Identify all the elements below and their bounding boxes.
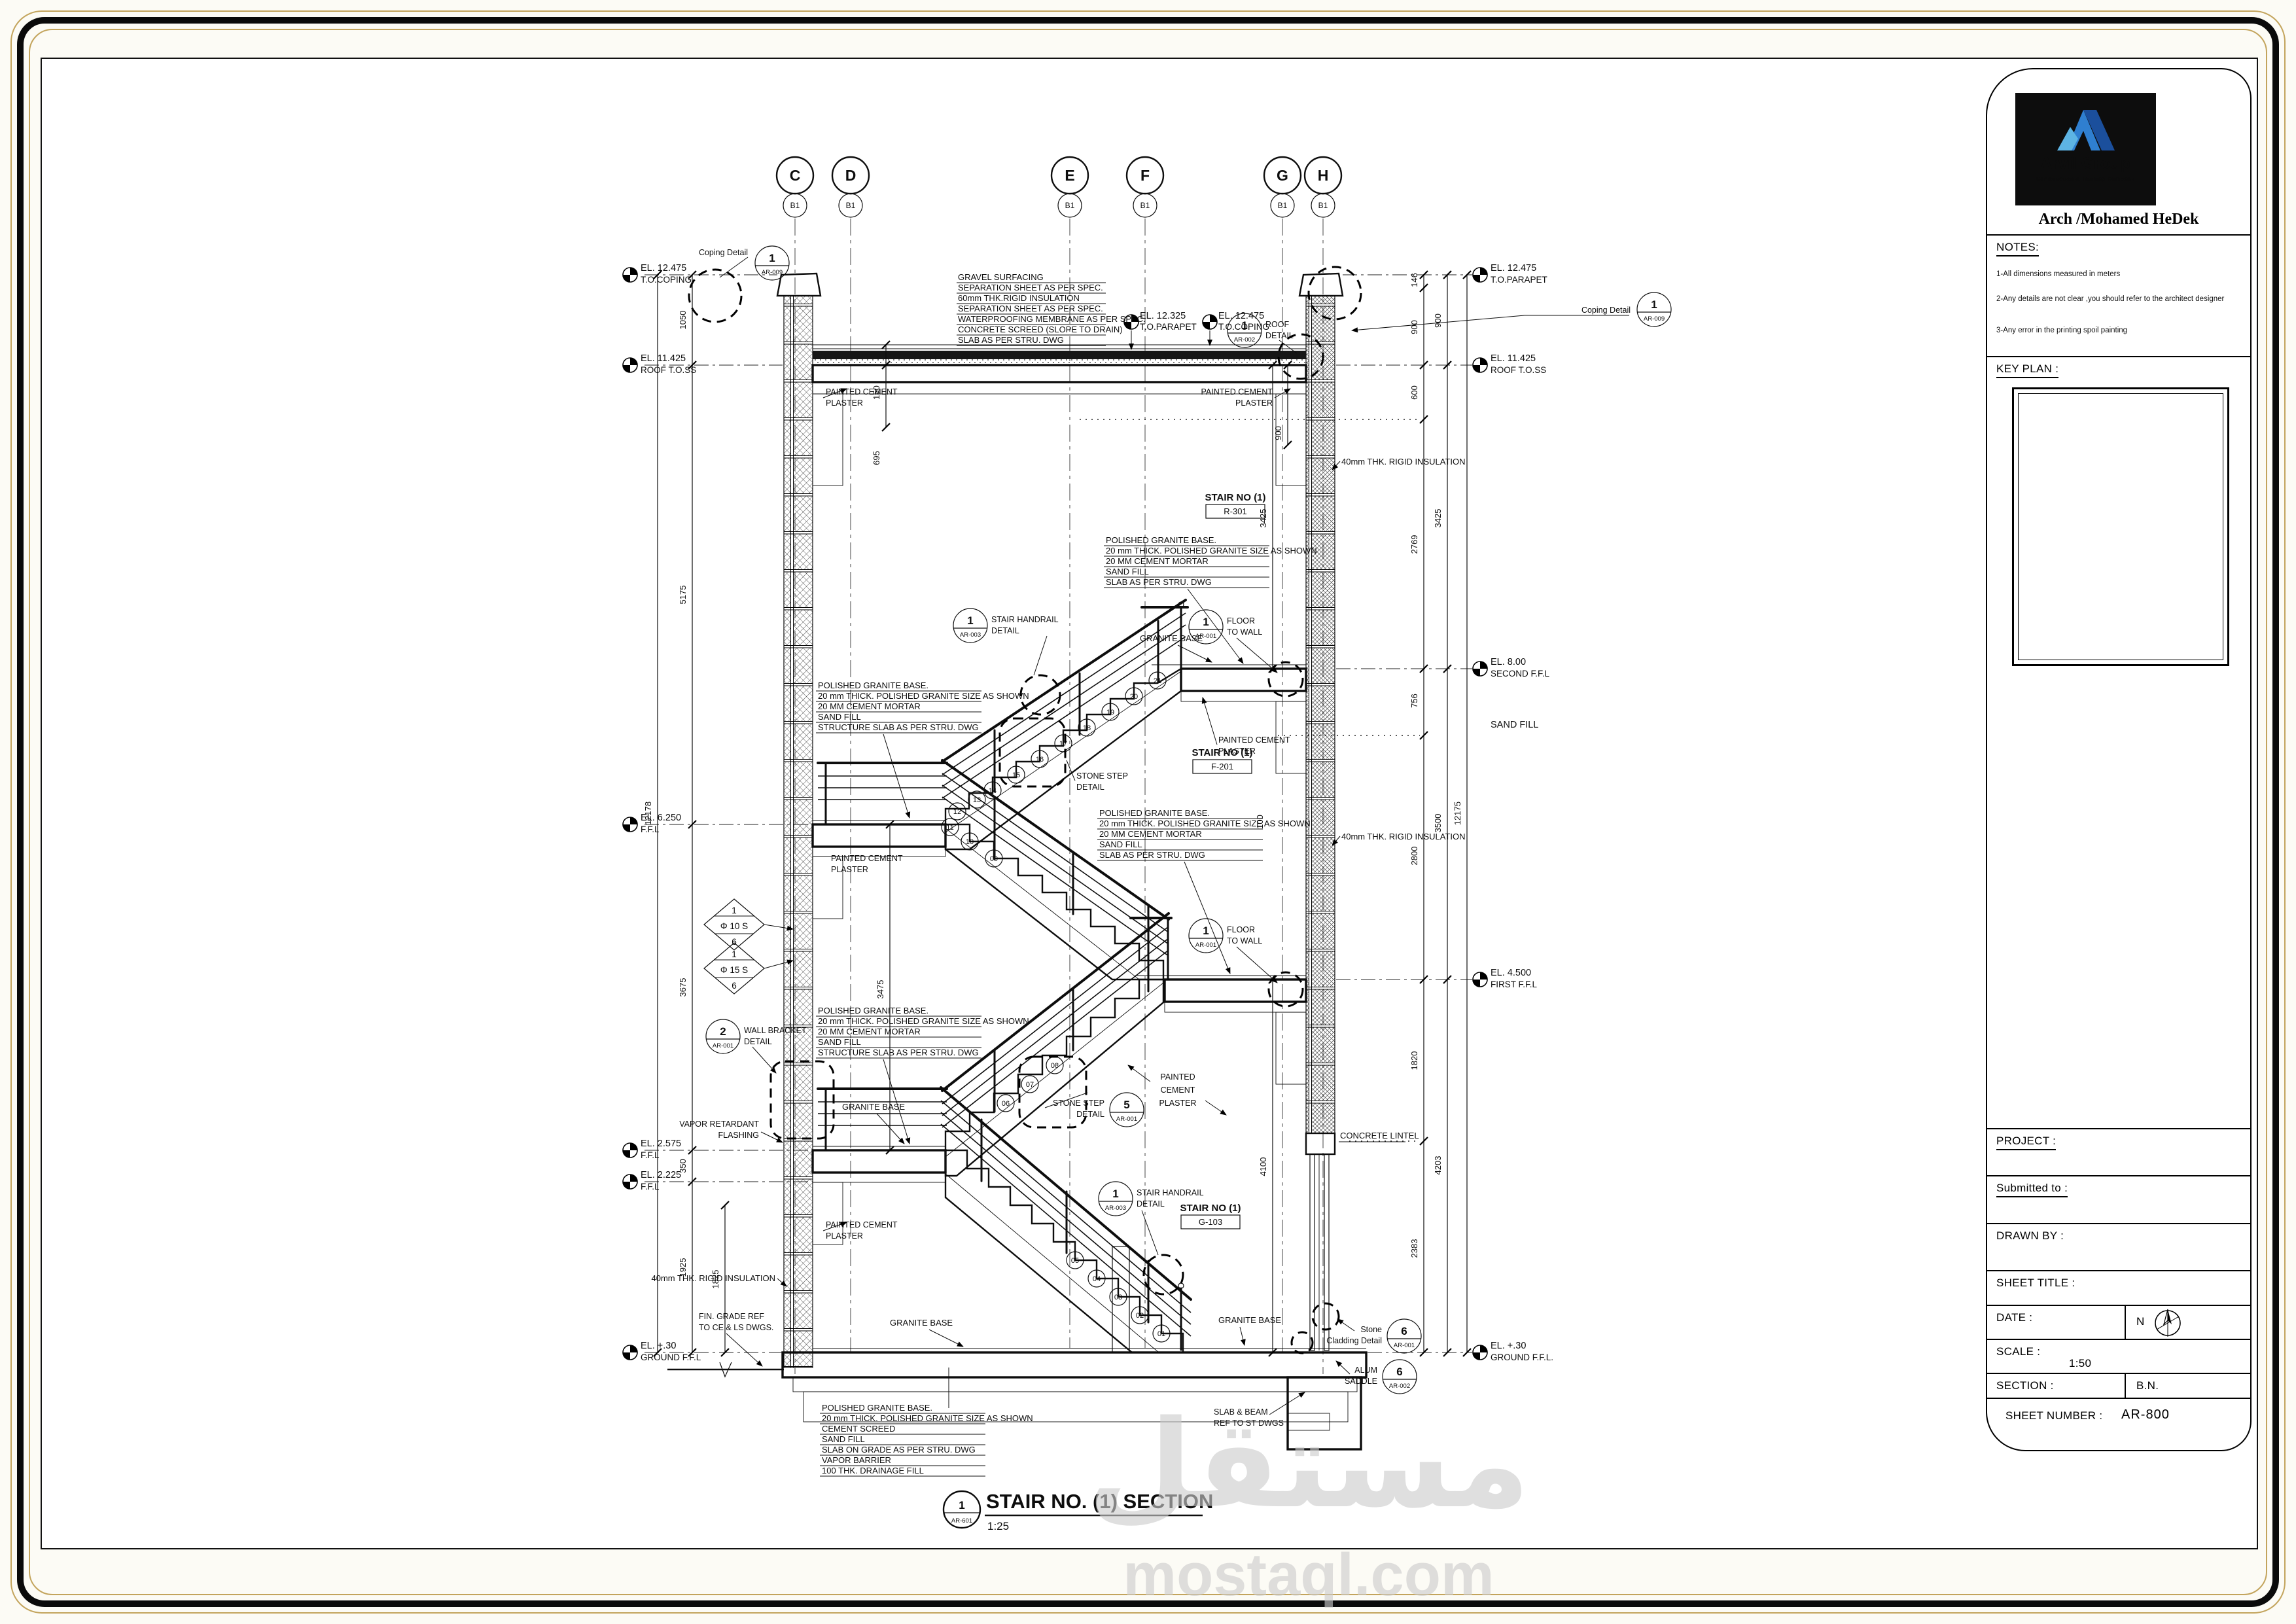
svg-text:EL. 11.425: EL. 11.425: [641, 353, 686, 364]
scale-value: 1:50: [2069, 1357, 2091, 1370]
svg-text:AR-003: AR-003: [1105, 1205, 1126, 1212]
svg-text:AR-001: AR-001: [1195, 942, 1216, 949]
svg-text:STONE STEP: STONE STEP: [1076, 771, 1128, 781]
svg-text:POLISHED GRANITE BASE.: POLISHED GRANITE BASE.: [1099, 808, 1210, 818]
date-label: DATE :: [1996, 1311, 2032, 1324]
svg-text:4100: 4100: [1258, 1157, 1268, 1176]
keyed-diamonds: 1 Φ 10 S 6 1 Φ 15 S 6: [704, 899, 793, 994]
elev-right-second: EL. 8.00SECOND F.F.L: [1473, 657, 1550, 679]
svg-text:EL. 6.250: EL. 6.250: [641, 813, 681, 823]
svg-text:G: G: [1277, 167, 1288, 184]
notes-label: NOTES:: [1996, 241, 2039, 254]
drawing-title: 1 AR-601 STAIR NO. (1) SECTION 1:25: [944, 1490, 1213, 1532]
insulation-label-right-1: 40mm THK. RIGID INSULATION: [1332, 457, 1466, 470]
stair-label-f201: STAIR NO (1)F-201: [1192, 747, 1252, 773]
svg-text:DETAIL: DETAIL: [1265, 331, 1294, 340]
step-number: 18: [1083, 724, 1091, 732]
divider: [1987, 1339, 2250, 1340]
svg-text:Stone: Stone: [1360, 1325, 1382, 1334]
svg-text:600: 600: [1409, 385, 1419, 400]
svg-text:20 mm THICK. POLISHED GRANITE: 20 mm THICK. POLISHED GRANITE SIZE AS SH…: [818, 691, 1029, 701]
logo-title: Arvil Group: [2040, 154, 2130, 173]
vapor-label: VAPOR RETARDANTFLASHING: [679, 1120, 783, 1142]
svg-text:SLAB AS PER STRU. DWG: SLAB AS PER STRU. DWG: [1099, 850, 1205, 860]
stair-label-r301: STAIR NO (1)R-301: [1205, 492, 1265, 518]
svg-text:C: C: [790, 167, 801, 184]
concrete-lintel-block: [1306, 1133, 1335, 1154]
svg-text:STAIR HANDRAIL: STAIR HANDRAIL: [1137, 1188, 1204, 1197]
divider: [1987, 234, 2250, 236]
svg-text:AR-001: AR-001: [1394, 1342, 1415, 1349]
svg-text:1: 1: [967, 614, 973, 627]
fin-grade-label: FIN. GRADE REFTO CE & LS DWGS.: [699, 1312, 773, 1366]
mid-landing-1: [813, 1146, 945, 1244]
svg-text:GROUND F.F.L.: GROUND F.F.L.: [1491, 1352, 1553, 1362]
svg-text:6: 6: [732, 937, 737, 947]
svg-text:100 THK. DRAINAGE FILL: 100 THK. DRAINAGE FILL: [822, 1466, 924, 1475]
svg-text:STAIR NO (1): STAIR NO (1): [1205, 492, 1265, 503]
svg-text:H: H: [1318, 167, 1329, 184]
submitted-label: Submitted to :: [1996, 1182, 2068, 1195]
svg-text:1: 1: [732, 906, 737, 915]
svg-text:SADDLE: SADDLE: [1345, 1377, 1377, 1386]
svg-text:B1: B1: [790, 201, 800, 210]
elev-left-ground: EL. +.30GROUND F.F.L: [623, 1341, 701, 1362]
drawing-title-text: STAIR NO. (1) SECTION: [986, 1490, 1213, 1513]
svg-text:EL. 12.475: EL. 12.475: [641, 263, 686, 274]
stair-label-g103: STAIR NO (1)G-103: [1180, 1203, 1241, 1229]
svg-text:3500: 3500: [1433, 814, 1443, 833]
svg-text:TO CE & LS DWGS.: TO CE & LS DWGS.: [699, 1323, 773, 1332]
grid-bubble-f: FB1: [1127, 157, 1163, 217]
svg-text:STAIR NO (1): STAIR NO (1): [1180, 1203, 1241, 1214]
step-number: 07: [1026, 1081, 1034, 1089]
svg-text:PLASTER: PLASTER: [1159, 1099, 1197, 1108]
divider: [1987, 1175, 2250, 1176]
svg-text:FLOOR: FLOOR: [1227, 925, 1255, 934]
svg-text:20 mm THICK. POLISHED GRANITE: 20 mm THICK. POLISHED GRANITE SIZE AS SH…: [1099, 819, 1311, 828]
slab-beam-label: SLAB & BEAMREF TO ST DWGS: [1214, 1392, 1305, 1428]
svg-text:4203: 4203: [1433, 1156, 1443, 1175]
svg-text:B1: B1: [1278, 201, 1288, 210]
logo-subtitle: Construction & Training Company: [2036, 175, 2134, 182]
svg-text:F: F: [1140, 167, 1150, 184]
step-number: 12: [953, 808, 961, 816]
svg-text:STAIR NO (1): STAIR NO (1): [1192, 747, 1252, 758]
step-number: 15: [1012, 771, 1020, 779]
key-plan-box: [2012, 387, 2229, 666]
concrete-lintel-label: CONCRETE LINTEL: [1339, 1131, 1419, 1142]
svg-text:AR-002: AR-002: [1234, 336, 1255, 344]
svg-text:60mm THK.RIGID INSULATION: 60mm THK.RIGID INSULATION: [958, 293, 1080, 303]
svg-text:40mm THK. RIGID INSULATION: 40mm THK. RIGID INSULATION: [1341, 832, 1466, 841]
svg-text:B1: B1: [1318, 201, 1328, 210]
svg-text:EL. +.30: EL. +.30: [1491, 1341, 1526, 1351]
callout-alum-saddle: ALUMSADDLE6AR-002: [1336, 1360, 1417, 1394]
svg-text:DETAIL: DETAIL: [1076, 783, 1104, 792]
svg-text:12175: 12175: [1453, 802, 1462, 825]
roof-layer-stack: GRAVEL SURFACING SEPARATION SHEET AS PER…: [957, 272, 1146, 345]
svg-text:EL. 2.575: EL. 2.575: [641, 1139, 681, 1149]
divider: [2125, 1305, 2126, 1339]
svg-text:SAND FILL: SAND FILL: [1106, 567, 1149, 576]
svg-text:STRUCTURE SLAB AS PER STRU. DW: STRUCTURE SLAB AS PER STRU. DWG: [818, 1048, 979, 1057]
svg-text:6: 6: [732, 981, 737, 991]
svg-text:PLASTER: PLASTER: [831, 865, 868, 874]
elev-left-roof: EL. 11.425ROOF T.O.SS: [623, 353, 696, 375]
grid-bubble-c: CB1: [777, 157, 813, 217]
insulation-label-right-2: 40mm THK. RIGID INSULATION: [1332, 832, 1466, 845]
elev-right-roof: EL. 11.425ROOF T.O.SS: [1473, 353, 1546, 375]
section-label: SECTION :: [1996, 1379, 2054, 1392]
svg-text:EL. +.30: EL. +.30: [641, 1341, 676, 1351]
svg-text:REF TO ST DWGS: REF TO ST DWGS: [1214, 1419, 1284, 1428]
diamond-phi15: 1 Φ 15 S 6: [704, 943, 793, 994]
svg-text:PAINTED CEMENT: PAINTED CEMENT: [1201, 387, 1273, 397]
step-number: 08: [1051, 1062, 1059, 1070]
divider: [1987, 1128, 2250, 1129]
ground-layer-stack: POLISHED GRANITE BASE. 20 mm THICK. POLI…: [820, 1368, 1033, 1476]
callout-stone-step-1: STONE STEPDETAIL5AR-001: [1045, 1093, 1144, 1127]
svg-text:AR-001: AR-001: [713, 1042, 733, 1050]
divider: [2125, 1373, 2126, 1398]
svg-text:TO WALL: TO WALL: [1227, 936, 1262, 945]
callout-coping-left: Coping Detail1AR-009: [699, 246, 789, 280]
svg-text:Φ 10 S: Φ 10 S: [720, 921, 748, 931]
step-number: 11: [946, 824, 953, 832]
svg-text:STAIR HANDRAIL: STAIR HANDRAIL: [991, 615, 1059, 624]
svg-text:PLASTER: PLASTER: [826, 398, 863, 408]
svg-text:POLISHED GRANITE BASE.: POLISHED GRANITE BASE.: [822, 1403, 932, 1413]
stone-step-label-2: STONE STEPDETAIL: [1067, 760, 1128, 792]
svg-text:POLISHED GRANITE BASE.: POLISHED GRANITE BASE.: [818, 680, 928, 690]
first-floor-slab: [1135, 976, 1306, 1084]
grid-bubble-d: DB1: [832, 157, 869, 217]
svg-text:Φ 15 S: Φ 15 S: [720, 965, 748, 975]
svg-text:1820: 1820: [1409, 1051, 1419, 1070]
stair-section-drawing: CB1 DB1 EB1 FB1 GB1 HB1: [0, 0, 2296, 1624]
svg-text:1050: 1050: [678, 311, 688, 330]
svg-text:SAND FILL: SAND FILL: [822, 1434, 865, 1444]
callout-handrail-2: 1AR-003STAIR HANDRAILDETAIL: [953, 609, 1059, 675]
svg-text:900: 900: [1433, 313, 1443, 328]
svg-text:2383: 2383: [1409, 1239, 1419, 1258]
svg-text:ROOF T.O.SS: ROOF T.O.SS: [1491, 365, 1546, 375]
elev-left-2575: EL. 2.575F.F.L: [623, 1139, 681, 1160]
svg-text:20 MM CEMENT MORTAR: 20 MM CEMENT MORTAR: [818, 1027, 921, 1036]
architect-name: Arch /Mohamed HeDek: [1987, 211, 2250, 228]
step-number: 09: [990, 855, 998, 863]
svg-text:T.O.PARAPET: T.O.PARAPET: [1140, 322, 1197, 332]
svg-text:GRANITE BASE: GRANITE BASE: [842, 1102, 905, 1112]
sheet-title-label: SHEET TITLE :: [1996, 1277, 2075, 1290]
svg-text:EL. 2.225: EL. 2.225: [641, 1170, 681, 1180]
dimensions: 12178 1050 5175 3675 350 1925 1825 146 9…: [643, 271, 1471, 1356]
svg-text:SEPARATION SHEET AS PER SPEC.: SEPARATION SHEET AS PER SPEC.: [958, 304, 1103, 313]
svg-text:AR-003: AR-003: [960, 631, 981, 639]
svg-text:EL. 4.500: EL. 4.500: [1491, 968, 1531, 978]
svg-text:POLISHED GRANITE BASE.: POLISHED GRANITE BASE.: [1106, 535, 1216, 545]
callout-handrail-1: 1AR-003STAIR HANDRAILDETAIL: [1099, 1182, 1204, 1255]
svg-text:WALL BRACKET: WALL BRACKET: [744, 1026, 807, 1035]
landing-2-railing: [818, 763, 947, 824]
svg-text:40mm THK. RIGID INSULATION: 40mm THK. RIGID INSULATION: [1341, 457, 1466, 467]
svg-text:CEMENT: CEMENT: [1161, 1086, 1195, 1095]
svg-text:20 MM CEMENT MORTAR: 20 MM CEMENT MORTAR: [818, 701, 921, 711]
svg-text:WATERPROOFING MEMBRANE AS PER: WATERPROOFING MEMBRANE AS PER SPEC.: [958, 314, 1146, 324]
svg-text:DETAIL: DETAIL: [744, 1037, 772, 1046]
divider: [1987, 1223, 2250, 1224]
svg-text:5: 5: [1123, 1099, 1129, 1111]
svg-text:FIN. GRADE REF: FIN. GRADE REF: [699, 1312, 764, 1321]
north-compass-icon: [2152, 1307, 2183, 1339]
svg-text:POLISHED GRANITE BASE.: POLISHED GRANITE BASE.: [818, 1006, 928, 1015]
grid-bubble-g: GB1: [1264, 157, 1301, 217]
svg-text:STRUCTURE SLAB AS PER STRU. DW: STRUCTURE SLAB AS PER STRU. DWG: [818, 722, 979, 732]
svg-text:STONE STEP: STONE STEP: [1053, 1099, 1104, 1108]
svg-text:PAINTED CEMENT: PAINTED CEMENT: [826, 1220, 898, 1229]
svg-text:F-201: F-201: [1211, 762, 1233, 771]
step-number: 02: [1136, 1312, 1144, 1320]
svg-text:3675: 3675: [678, 978, 688, 997]
svg-text:AR-009: AR-009: [1644, 315, 1665, 323]
svg-text:1: 1: [1203, 616, 1209, 628]
sand-fill-label: SAND FILL: [1491, 720, 1538, 730]
note-1: 1-All dimensions measured in meters: [1996, 270, 2232, 279]
svg-text:Coping Detail: Coping Detail: [1581, 306, 1631, 315]
grid-bubble-e: EB1: [1051, 157, 1088, 217]
svg-text:CONCRETE SCREED (SLOPE TO DRAI: CONCRETE SCREED (SLOPE TO DRAIN): [958, 325, 1123, 334]
svg-text:PAINTED CEMENT: PAINTED CEMENT: [1218, 735, 1290, 745]
svg-text:ALUM: ALUM: [1354, 1366, 1377, 1375]
scale-label: SCALE :: [1996, 1345, 2040, 1358]
svg-text:SLAB AS PER STRU. DWG: SLAB AS PER STRU. DWG: [1106, 577, 1212, 587]
svg-text:SAND FILL: SAND FILL: [818, 712, 861, 722]
elev-left-2225: EL. 2.225F.F.L: [623, 1170, 681, 1192]
svg-text:PLASTER: PLASTER: [1235, 398, 1273, 408]
svg-text:F.F.L: F.F.L: [641, 824, 660, 834]
elev-right-ground: EL. +.30GROUND F.F.L.: [1473, 1341, 1553, 1362]
section-value: B.N.: [2136, 1379, 2159, 1392]
svg-text:SLAB AS PER STRU. DWG: SLAB AS PER STRU. DWG: [958, 335, 1064, 345]
svg-text:FIRST F.F.L: FIRST F.F.L: [1491, 980, 1538, 989]
callout-coping-right: Coping Detail1AR-009: [1352, 292, 1671, 330]
svg-text:E: E: [1065, 167, 1074, 184]
svg-text:FLOOR: FLOOR: [1227, 616, 1255, 626]
svg-text:DETAIL: DETAIL: [991, 626, 1019, 635]
step-number: 20: [1130, 693, 1138, 701]
svg-text:GRANITE BASE: GRANITE BASE: [1218, 1315, 1281, 1325]
svg-text:VAPOR RETARDANT: VAPOR RETARDANT: [679, 1120, 759, 1129]
step-number: 10: [966, 838, 974, 846]
roof-slab: [813, 345, 1306, 485]
stairs: [818, 600, 1191, 1352]
svg-text:PLASTER: PLASTER: [826, 1231, 863, 1241]
svg-text:AR-601: AR-601: [951, 1517, 972, 1525]
elev-right-first: EL. 4.500FIRST F.F.L: [1473, 968, 1538, 989]
sheet-number-label: SHEET NUMBER :: [2005, 1409, 2102, 1422]
svg-text:900: 900: [1409, 320, 1419, 334]
svg-text:2769: 2769: [1409, 535, 1419, 554]
svg-text:G-103: G-103: [1199, 1217, 1222, 1227]
second-floor-layer-stack: POLISHED GRANITE BASE. 20 mm THICK. POLI…: [1104, 535, 1317, 663]
left-coping: [777, 274, 821, 296]
divider: [1987, 356, 2250, 357]
svg-text:40mm THK. RIGID INSULATION: 40mm THK. RIGID INSULATION: [652, 1273, 776, 1283]
elev-left-coping: EL. 12.475T.O.COPING: [623, 263, 692, 285]
svg-text:CONCRETE LINTEL: CONCRETE LINTEL: [1340, 1131, 1419, 1140]
svg-text:20 mm THICK. POLISHED GRANITE: 20 mm THICK. POLISHED GRANITE SIZE AS SH…: [822, 1413, 1033, 1423]
svg-text:2800: 2800: [1409, 847, 1419, 866]
svg-text:EL. 11.425: EL. 11.425: [1491, 353, 1536, 364]
svg-text:1: 1: [732, 949, 737, 959]
svg-text:20 MM CEMENT MORTAR: 20 MM CEMENT MORTAR: [1106, 556, 1209, 566]
svg-text:AR-009: AR-009: [762, 269, 783, 276]
svg-text:GROUND F.F.L: GROUND F.F.L: [641, 1352, 701, 1362]
svg-text:DETAIL: DETAIL: [1137, 1199, 1165, 1209]
svg-text:146: 146: [1409, 273, 1419, 287]
step-number: 16: [1036, 756, 1044, 764]
callout-stone-cladding: StoneCladding Detail6AR-001: [1326, 1319, 1421, 1353]
svg-text:F.F.L: F.F.L: [641, 1182, 660, 1192]
svg-text:20 mm THICK. POLISHED GRANITE: 20 mm THICK. POLISHED GRANITE SIZE AS SH…: [1106, 546, 1317, 556]
drawing-scale-text: 1:25: [987, 1520, 1009, 1532]
svg-text:T.O.COPING: T.O.COPING: [641, 275, 692, 285]
step-number: 04: [1093, 1275, 1101, 1283]
svg-text:20 mm THICK. POLISHED GRANITE: 20 mm THICK. POLISHED GRANITE SIZE AS SH…: [818, 1016, 1029, 1026]
svg-text:SEPARATION SHEET AS PER SPEC.: SEPARATION SHEET AS PER SPEC.: [958, 283, 1103, 292]
svg-text:3425: 3425: [1433, 509, 1443, 528]
company-logo: Arvil Group Construction & Training Comp…: [2015, 93, 2156, 205]
svg-text:1: 1: [1112, 1188, 1118, 1200]
note-3: 3-Any error in the printing spoil painti…: [1996, 326, 2232, 335]
sheet-number-value: AR-800: [2121, 1407, 2170, 1422]
step-number: 21: [1154, 677, 1161, 685]
svg-text:AR-001: AR-001: [1195, 633, 1216, 640]
svg-text:B1: B1: [846, 201, 856, 210]
svg-text:PAINTED CEMENT: PAINTED CEMENT: [831, 854, 903, 863]
svg-text:GRAVEL SURFACING: GRAVEL SURFACING: [958, 272, 1044, 282]
divider: [1987, 1373, 2250, 1374]
svg-text:AR-002: AR-002: [1389, 1383, 1410, 1390]
svg-text:R-301: R-301: [1224, 506, 1246, 516]
step-number: 19: [1106, 709, 1114, 716]
grid-bubbles: CB1 DB1 EB1 FB1 GB1 HB1: [777, 157, 1341, 217]
svg-text:DETAIL: DETAIL: [1076, 1110, 1104, 1119]
svg-text:6: 6: [1401, 1325, 1407, 1337]
svg-text:ROOF T.O.SS: ROOF T.O.SS: [641, 365, 696, 375]
svg-text:EL. 12.475: EL. 12.475: [1491, 263, 1536, 274]
svg-text:PAINTED CEMENT: PAINTED CEMENT: [826, 387, 898, 397]
svg-text:1: 1: [769, 252, 775, 264]
svg-text:Cladding Detail: Cladding Detail: [1326, 1336, 1382, 1345]
note-2: 2-Any details are not clear ,you should …: [1996, 294, 2232, 304]
diamond-phi10: 1 Φ 10 S 6: [704, 899, 793, 950]
svg-text:SLAB & BEAM: SLAB & BEAM: [1214, 1407, 1268, 1417]
svg-text:ROOF: ROOF: [1265, 320, 1289, 329]
elev-right-parapet: EL. 12.475T.O.PARAPET: [1473, 263, 1547, 285]
svg-text:1: 1: [1241, 319, 1247, 332]
level-lines: [645, 275, 1472, 1352]
svg-text:B1: B1: [1065, 201, 1075, 210]
title-block: Arvil Group Construction & Training Comp…: [1986, 68, 2252, 1451]
svg-text:SLAB ON GRADE AS PER STRU. DWG: SLAB ON GRADE AS PER STRU. DWG: [822, 1445, 976, 1455]
svg-text:2: 2: [720, 1025, 726, 1038]
svg-text:D: D: [845, 167, 857, 184]
svg-text:695: 695: [872, 451, 881, 465]
svg-text:SECOND F.F.L: SECOND F.F.L: [1491, 669, 1550, 679]
svg-text:1: 1: [1651, 298, 1657, 311]
svg-text:SAND FILL: SAND FILL: [818, 1037, 861, 1047]
svg-text:TO WALL: TO WALL: [1227, 627, 1262, 637]
sheet-page: CB1 DB1 EB1 FB1 GB1 HB1: [0, 0, 2296, 1624]
svg-text:PAINTED: PAINTED: [1160, 1072, 1195, 1082]
svg-text:20 MM CEMENT MORTAR: 20 MM CEMENT MORTAR: [1099, 829, 1202, 839]
right-coping: [1299, 274, 1343, 296]
svg-text:1: 1: [959, 1499, 964, 1511]
flight-1-lower-railing: [941, 1087, 1191, 1350]
step-number: 05: [1071, 1257, 1079, 1265]
svg-text:EL. 8.00: EL. 8.00: [1491, 657, 1526, 667]
svg-text:B1: B1: [1140, 201, 1150, 210]
svg-text:FLASHING: FLASHING: [718, 1131, 759, 1140]
callout-floor-wall-1: 1AR-001FLOORTO WALL: [1189, 919, 1277, 983]
grid-bubble-h: HB1: [1305, 157, 1341, 217]
step-number: 03: [1114, 1294, 1122, 1301]
svg-text:5175: 5175: [678, 586, 688, 605]
svg-text:VAPOR BARRIER: VAPOR BARRIER: [822, 1455, 891, 1465]
step-number: 14: [989, 787, 997, 795]
svg-text:1: 1: [1203, 925, 1209, 937]
svg-text:F.F.L: F.F.L: [641, 1150, 660, 1160]
landing-1-layer-stack: POLISHED GRANITE BASE. 20 mm THICK. POLI…: [816, 1006, 1029, 1144]
svg-text:3475: 3475: [875, 980, 885, 999]
drawn-by-label: DRAWN BY :: [1996, 1229, 2064, 1243]
project-label: PROJECT :: [1996, 1135, 2056, 1148]
svg-text:CEMENT SCREED: CEMENT SCREED: [822, 1424, 895, 1434]
elevation-markers: EL. 12.475T.O.COPING EL. 11.425ROOF T.O.…: [623, 263, 1553, 1362]
step-number: 13: [973, 796, 981, 804]
svg-text:SAND FILL: SAND FILL: [1099, 839, 1142, 849]
key-plan-label: KEY PLAN :: [1996, 362, 2058, 376]
divider: [1987, 1305, 2250, 1306]
svg-text:756: 756: [1409, 694, 1419, 708]
svg-text:AR-001: AR-001: [1116, 1116, 1137, 1123]
step-number: 06: [1002, 1100, 1010, 1108]
svg-text:Coping Detail: Coping Detail: [699, 248, 748, 257]
divider: [1987, 1398, 2250, 1399]
svg-text:EL. 12.325: EL. 12.325: [1140, 311, 1186, 321]
divider: [1987, 1270, 2250, 1271]
svg-text:900: 900: [1273, 426, 1283, 440]
step-number: 01: [1157, 1330, 1165, 1338]
svg-text:6: 6: [1396, 1366, 1402, 1378]
north-letter: N: [2136, 1315, 2145, 1328]
svg-text:GRANITE BASE: GRANITE BASE: [890, 1318, 953, 1328]
svg-text:T.O.PARAPET: T.O.PARAPET: [1491, 275, 1547, 285]
